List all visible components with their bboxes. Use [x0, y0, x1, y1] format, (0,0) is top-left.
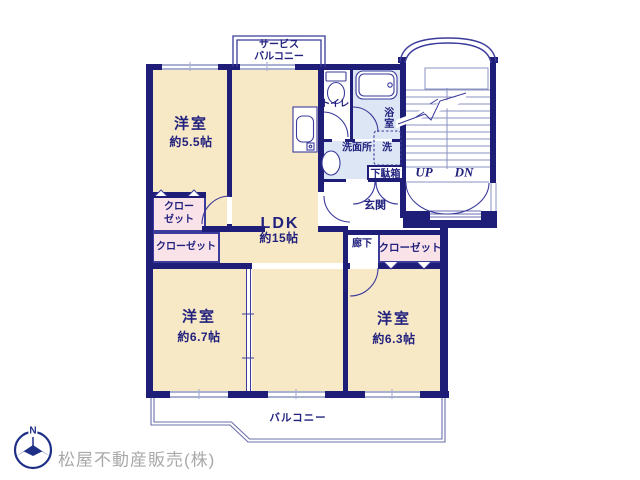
room63-name: 洋室 [377, 310, 411, 327]
entry-threshold-lines [430, 211, 481, 217]
compass-north-label: N [28, 426, 37, 437]
wall-room55-bottom [146, 192, 206, 198]
entrance-area [324, 182, 400, 230]
service-balcony-label-2: バルコニー [254, 51, 304, 63]
company-name: 松屋不動産販売(株) [58, 446, 215, 471]
closet1-label-line2: ゼット [164, 214, 194, 226]
stair-treads [406, 68, 496, 211]
stairs-down-label: DN [455, 166, 474, 181]
door-jamb [227, 197, 232, 224]
wall-wet-h2a [324, 179, 346, 182]
window-bottom-2 [268, 391, 325, 398]
stair-break-line [398, 93, 466, 124]
window-top-1 [162, 64, 218, 70]
washroom-label: 洗面所 [342, 142, 372, 154]
toilet-label: トイレ [321, 100, 350, 111]
compass-icon [15, 432, 51, 468]
arch-foot-left [398, 57, 406, 63]
wall-toilet-bath [350, 70, 353, 141]
closet-1 [152, 194, 206, 232]
room-area-west63 [348, 269, 440, 391]
wall-room63-left [343, 263, 348, 391]
room67-size: 約6.7帖 [177, 331, 220, 345]
stairs-up-label: UP [415, 166, 432, 181]
bath-label: 浴室 [381, 107, 393, 129]
balcony-label: バルコニー [269, 412, 326, 424]
wall-stair-right [490, 62, 496, 183]
wall-stair-left [400, 62, 406, 218]
closet1-label-line1: クロー [164, 201, 194, 213]
stairwell-arch [400, 38, 496, 63]
wall-mid-left [202, 226, 265, 232]
wall-stair-bottom [403, 219, 497, 228]
stair-break-mask [396, 93, 466, 128]
window-bottom-1 [170, 391, 228, 398]
wall-wet-h1c [392, 139, 400, 142]
window-bottom-3 [365, 391, 420, 398]
shoe-cabinet-box: 下駄箱 [367, 165, 404, 180]
ldk-size: 約15帖 [259, 232, 298, 246]
sliding-partition [246, 269, 251, 391]
wall-room63-top [378, 263, 448, 269]
closet2-label: クローゼット [156, 241, 216, 253]
wall-closet3-top [343, 230, 448, 235]
ldk-area-dining [252, 269, 343, 391]
wall-room67-top [146, 263, 252, 269]
room55-size: 約5.5帖 [169, 136, 212, 150]
shoe-cabinet-label: 下駄箱 [371, 165, 401, 180]
room67-name: 洋室 [182, 308, 216, 325]
service-balcony-label-1: サービス [259, 39, 299, 51]
closet3-label: クローゼット [379, 242, 442, 254]
washer-label: 洗 [382, 142, 392, 154]
room63-size: 約6.3帖 [372, 333, 415, 347]
wall-stair-bottom-right [481, 211, 497, 220]
window-top-2 [240, 64, 295, 70]
arch-foot-right [490, 57, 498, 63]
hallway-label: 廊下 [352, 238, 372, 250]
wall-wet-h1a [324, 139, 332, 142]
entrance-label: 玄関 [364, 200, 386, 213]
wall-ldk-wet [318, 64, 324, 192]
floor-plan: 下駄箱 [0, 0, 640, 480]
room55-name: 洋室 [174, 115, 208, 132]
wall-stair-bottom-left [403, 211, 430, 220]
wall-room55-right [227, 70, 232, 197]
wall-left [146, 64, 153, 398]
